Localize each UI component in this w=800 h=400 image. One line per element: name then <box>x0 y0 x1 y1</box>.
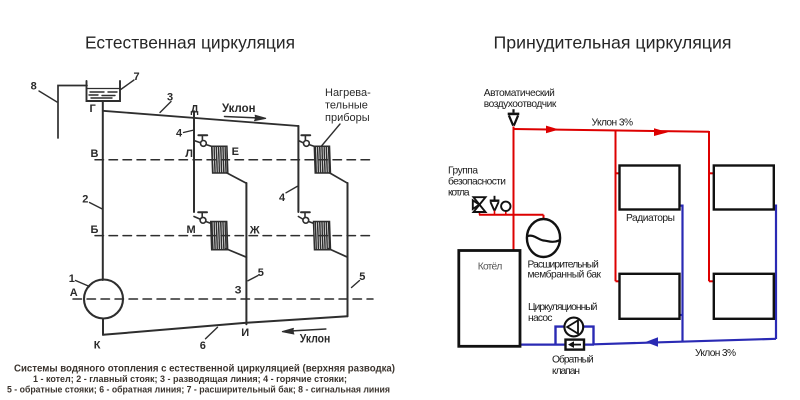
svg-text:3: 3 <box>167 92 173 104</box>
svg-text:5: 5 <box>359 271 365 283</box>
svg-text:Обратный: Обратный <box>552 354 594 366</box>
svg-text:Л: Л <box>185 148 193 160</box>
svg-text:Котёл: Котёл <box>478 262 503 273</box>
svg-text:1: 1 <box>69 273 75 285</box>
svg-text:А: А <box>70 287 78 299</box>
svg-text:8: 8 <box>31 81 37 93</box>
svg-text:Нагрева-: Нагрева- <box>325 87 371 99</box>
svg-text:М: М <box>187 224 196 236</box>
svg-text:Циркуляционный: Циркуляционный <box>528 302 598 313</box>
svg-text:котла: котла <box>448 187 470 198</box>
svg-text:Уклон 3%: Уклон 3% <box>695 348 736 359</box>
svg-text:Ж: Ж <box>249 225 260 237</box>
svg-text:Естественная циркуляция: Естественная циркуляция <box>85 33 295 53</box>
svg-text:4: 4 <box>279 192 286 204</box>
svg-text:Д: Д <box>191 104 199 116</box>
svg-text:Принудительная циркуляция: Принудительная циркуляция <box>494 33 732 53</box>
svg-text:5: 5 <box>258 267 264 279</box>
svg-text:И: И <box>241 327 249 339</box>
svg-text:Уклон: Уклон <box>300 334 331 346</box>
svg-text:Автоматический: Автоматический <box>484 88 555 99</box>
svg-text:тельные: тельные <box>325 100 368 112</box>
svg-text:Б: Б <box>91 224 99 236</box>
svg-text:6: 6 <box>200 340 206 352</box>
svg-text:5 - обратные стояки; 6 - обрат: 5 - обратные стояки; 6 - обратная линия;… <box>7 385 390 396</box>
svg-text:Уклон 3%: Уклон 3% <box>592 118 634 129</box>
svg-text:З: З <box>235 285 242 297</box>
svg-text:Системы водяного отопления с е: Системы водяного отопления с естественно… <box>14 364 395 375</box>
svg-text:Радиаторы: Радиаторы <box>626 213 675 224</box>
svg-text:Группа: Группа <box>448 166 478 177</box>
svg-text:Г: Г <box>90 103 97 115</box>
svg-text:безопасности: безопасности <box>448 176 506 188</box>
svg-text:7: 7 <box>134 71 140 83</box>
svg-text:Е: Е <box>232 146 239 158</box>
svg-text:насос: насос <box>528 313 553 324</box>
svg-text:1 - котел; 2 - главный стояк;: 1 - котел; 2 - главный стояк; 3 - развод… <box>33 374 347 385</box>
svg-text:мембранный бак: мембранный бак <box>528 269 602 281</box>
svg-text:приборы: приборы <box>325 112 370 124</box>
svg-text:4: 4 <box>176 128 183 140</box>
svg-text:клапан: клапан <box>552 366 580 377</box>
svg-text:2: 2 <box>82 194 88 206</box>
svg-text:В: В <box>91 148 99 160</box>
svg-text:К: К <box>94 340 101 352</box>
svg-text:Уклон: Уклон <box>222 103 256 115</box>
svg-text:воздухоотводчик: воздухоотводчик <box>484 99 557 110</box>
